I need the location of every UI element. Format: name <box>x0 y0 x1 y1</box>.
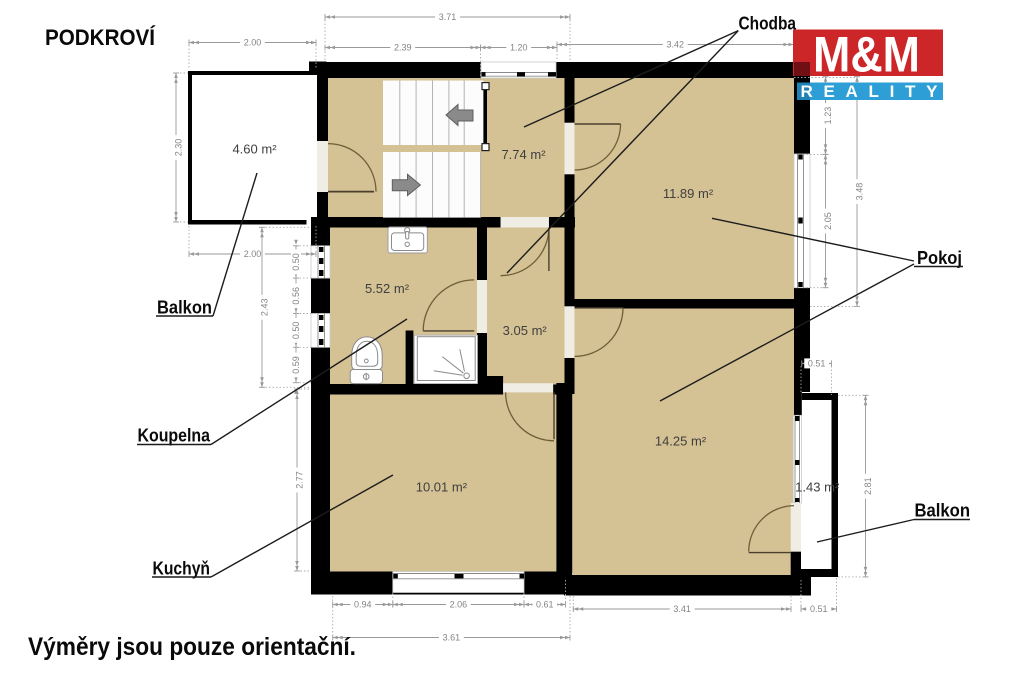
svg-text:3.05 m²: 3.05 m² <box>503 323 548 338</box>
svg-text:2.00: 2.00 <box>244 249 262 259</box>
svg-text:4.60 m²: 4.60 m² <box>232 142 277 157</box>
svg-text:1.23: 1.23 <box>823 107 833 125</box>
svg-text:0.94: 0.94 <box>354 600 372 610</box>
svg-text:Výměry jsou pouze orientační.: Výměry jsou pouze orientační. <box>28 633 356 661</box>
svg-text:0.56: 0.56 <box>291 287 301 305</box>
svg-text:2.05: 2.05 <box>823 212 833 230</box>
svg-text:PODKROVÍ: PODKROVÍ <box>45 25 156 50</box>
svg-text:0.61: 0.61 <box>536 600 554 610</box>
svg-text:1.20: 1.20 <box>510 43 528 53</box>
svg-text:0.51: 0.51 <box>810 604 828 614</box>
svg-text:3.41: 3.41 <box>673 604 691 614</box>
svg-text:2.30: 2.30 <box>173 139 183 157</box>
svg-text:3.48: 3.48 <box>854 183 864 201</box>
svg-text:Balkon: Balkon <box>157 297 212 318</box>
svg-text:2.81: 2.81 <box>863 477 873 495</box>
svg-text:Chodba: Chodba <box>739 13 797 34</box>
svg-text:3.71: 3.71 <box>439 12 457 22</box>
svg-text:3.42: 3.42 <box>666 40 684 50</box>
svg-text:0.59: 0.59 <box>291 356 301 374</box>
svg-text:10.01 m²: 10.01 m² <box>416 480 468 495</box>
svg-text:7.74 m²: 7.74 m² <box>501 147 546 162</box>
svg-text:2.39: 2.39 <box>394 43 412 53</box>
svg-text:Balkon: Balkon <box>915 500 971 521</box>
svg-text:2.77: 2.77 <box>294 471 304 489</box>
svg-text:2.06: 2.06 <box>450 600 468 610</box>
svg-text:2.43: 2.43 <box>259 299 269 317</box>
svg-text:M&M: M&M <box>813 27 920 83</box>
svg-text:0.50: 0.50 <box>291 253 301 271</box>
svg-text:1.43 m²: 1.43 m² <box>795 480 840 495</box>
svg-text:5.52 m²: 5.52 m² <box>365 281 410 296</box>
svg-text:Pokoj: Pokoj <box>917 247 962 268</box>
svg-text:11.89 m²: 11.89 m² <box>663 186 714 201</box>
svg-text:2.00: 2.00 <box>244 38 262 48</box>
svg-text:Kuchyň: Kuchyň <box>153 558 211 579</box>
svg-text:0.51: 0.51 <box>808 358 826 368</box>
svg-text:0.50: 0.50 <box>291 322 301 340</box>
svg-text:14.25 m²: 14.25 m² <box>655 434 707 449</box>
svg-text:Koupelna: Koupelna <box>138 425 211 446</box>
svg-text:3.61: 3.61 <box>443 633 461 643</box>
